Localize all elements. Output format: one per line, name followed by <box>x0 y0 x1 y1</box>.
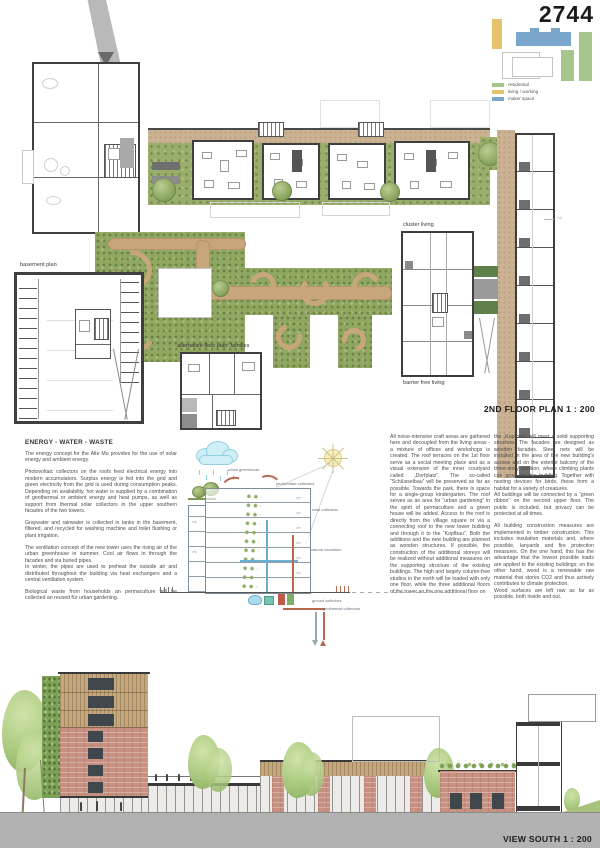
cluster-living-building <box>401 231 474 377</box>
office-room <box>328 143 386 200</box>
residential-bar <box>515 133 555 478</box>
brick-pier <box>410 776 422 813</box>
stair-core <box>432 293 448 313</box>
paragraph: Graywater and rainwater is collected in … <box>25 520 177 539</box>
sanitary-pod <box>292 150 302 172</box>
diagram-label: natural circulation <box>311 547 342 552</box>
text-column-3: the „Kopfbau“ will meet a solid supporti… <box>494 434 594 606</box>
second-floor-plan: Str. cluster living barrier free living <box>0 0 600 430</box>
tank <box>287 594 294 605</box>
basement-core <box>75 309 111 359</box>
paragraph: Biological waste from households an perm… <box>25 589 177 602</box>
cloud-icon <box>206 441 230 461</box>
diagram-label: geothermal collectors <box>323 606 360 611</box>
paragraph: Photovoltaic collectors on the roofs fee… <box>25 469 177 514</box>
alternative-floor-plan <box>180 352 262 430</box>
text-column-2: All noise-intensive craft areas are gath… <box>390 434 490 600</box>
cluster-living-label: cluster living <box>403 222 434 228</box>
terrace-outline <box>322 202 390 216</box>
view-south-elevation: VIEW SOUTH 1 : 200 <box>0 660 600 849</box>
stair-pod <box>358 122 384 137</box>
presentation-board: 2744 residential living / working maker … <box>0 0 600 849</box>
barrier-free-living-label: barrier free living <box>403 380 445 386</box>
brick-pier <box>364 776 376 813</box>
plan-title: 2ND FLOOR PLAN 1 : 200 <box>370 404 595 414</box>
diagram-label: urban greenhouse <box>228 467 260 472</box>
paragraph: The energy concept for the Alte Mu provi… <box>25 451 177 464</box>
climbing-plants <box>240 492 261 593</box>
steel-net-frame <box>352 716 440 762</box>
paragraph: The ventilation concept of the new tower… <box>25 545 177 584</box>
street-tick <box>544 219 554 220</box>
garden-path <box>108 238 246 250</box>
green-ribbon-connector <box>474 301 498 314</box>
sanitary-pod <box>426 150 436 172</box>
greenhouse-plant <box>192 486 206 498</box>
diagram-label: photovoltaic collectors <box>276 481 314 486</box>
paragraph: the „Kopfbau“ will meet a solid supporti… <box>494 434 594 518</box>
stair-pod <box>258 122 284 137</box>
tower-brick-storeys <box>60 728 148 798</box>
glazed-ground-floor <box>148 786 260 813</box>
paragraph: All building construction measures are i… <box>494 523 594 600</box>
access-balcony <box>497 130 515 478</box>
basement-plan <box>14 272 144 424</box>
rainwater-tank <box>248 595 262 605</box>
tree <box>380 182 400 202</box>
tower-section <box>205 488 311 594</box>
steel-net-frame <box>528 694 596 722</box>
workshop-room <box>192 140 254 200</box>
alternative-plan-label: alternative floor plan: families <box>177 343 249 349</box>
green-facade-wall <box>42 676 62 798</box>
diagram-label: ground collectors <box>312 598 342 603</box>
cloud-icon <box>222 449 238 463</box>
tower-ground-floor <box>60 798 148 813</box>
entrance-porch <box>22 150 34 184</box>
existing-wing-section <box>188 505 206 593</box>
sun-icon <box>324 449 342 467</box>
tank <box>264 596 274 605</box>
heat-pump <box>278 594 285 605</box>
canopy-wedge <box>80 0 122 70</box>
view-title: VIEW SOUTH 1 : 200 <box>420 834 592 844</box>
ground-line <box>160 592 350 593</box>
paragraph: All noise-intensive craft areas are gath… <box>390 434 490 595</box>
planter-bench <box>152 162 180 170</box>
street-label: Str. <box>557 215 563 220</box>
text-column-1: ENERGY - WATER - WASTE The energy concep… <box>25 439 177 607</box>
cloud-icon <box>199 455 233 465</box>
green-ribbon-connector <box>474 266 498 277</box>
tree <box>212 280 229 297</box>
tree <box>152 178 176 202</box>
sun-beam <box>276 463 331 488</box>
section-cut-building <box>516 722 562 813</box>
basement-plan-label: basement plan <box>20 262 57 268</box>
ramp-line <box>484 318 495 373</box>
courtyard-skylight <box>158 268 212 318</box>
cloud-icon <box>196 448 216 464</box>
bridge-ramp <box>474 279 498 299</box>
diagram-label: solar collectors <box>312 507 338 512</box>
energy-heading: ENERGY - WATER - WASTE <box>25 439 177 446</box>
terrace-outline <box>210 202 300 218</box>
tree <box>272 181 292 201</box>
gray-roof-piece <box>120 138 134 168</box>
sun-beam <box>305 465 335 545</box>
greenhouse-plant <box>203 482 219 496</box>
